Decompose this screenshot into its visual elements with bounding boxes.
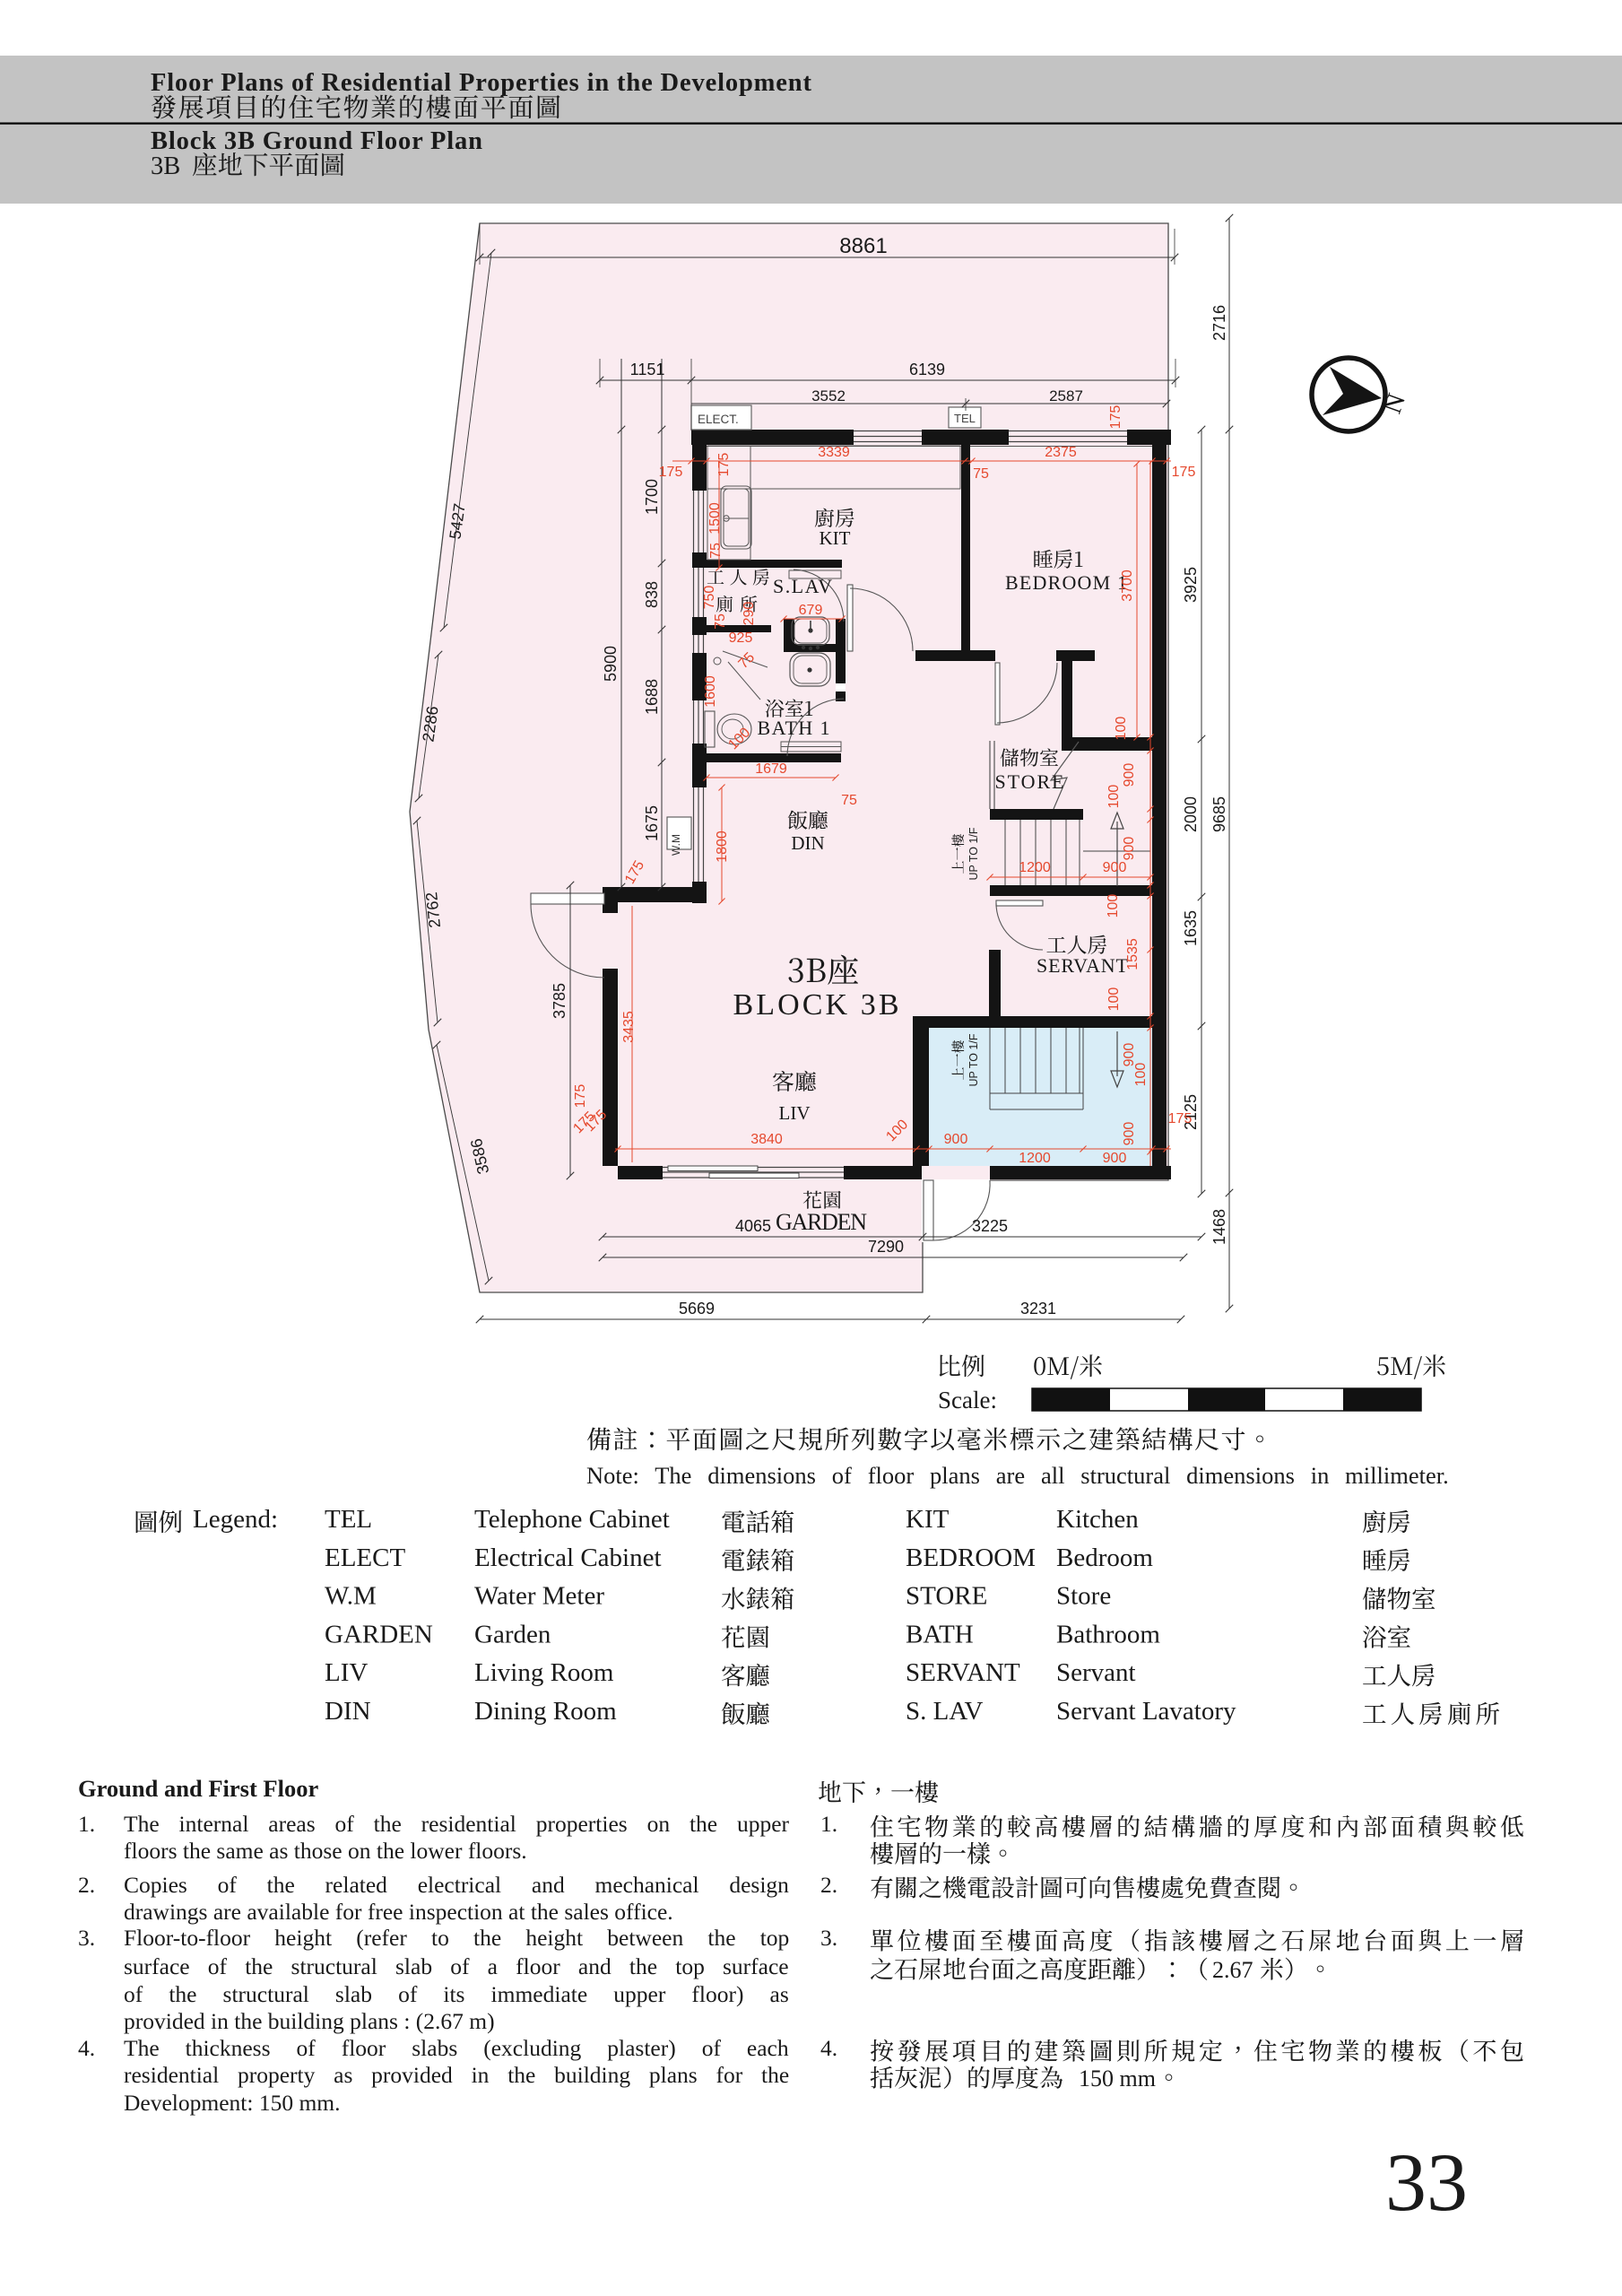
svg-text:UP TO 1/F: UP TO 1/F — [967, 1033, 980, 1086]
svg-text:The thickness of floor slabs (: The thickness of floor slabs (excluding … — [124, 2035, 789, 2061]
svg-text:Telephone Cabinet: Telephone Cabinet — [474, 1505, 670, 1534]
svg-text:3435: 3435 — [621, 1011, 637, 1043]
svg-text:Water Meter: Water Meter — [474, 1582, 604, 1611]
svg-text:3785: 3785 — [551, 983, 568, 1019]
svg-text:W.M: W.M — [325, 1582, 377, 1611]
svg-text:Servant Lavatory: Servant Lavatory — [1056, 1697, 1236, 1726]
svg-text:100: 100 — [1106, 894, 1121, 918]
svg-text:S.LAV: S.LAV — [773, 575, 832, 597]
svg-text:Scale:: Scale: — [938, 1387, 997, 1413]
svg-text:3552: 3552 — [811, 387, 846, 404]
svg-text:Garden: Garden — [474, 1620, 551, 1648]
svg-text:75: 75 — [841, 793, 857, 808]
svg-text:Kitchen: Kitchen — [1056, 1505, 1139, 1534]
svg-text:ELECT.: ELECT. — [698, 413, 739, 426]
svg-text:75: 75 — [713, 613, 728, 630]
svg-text:4065: 4065 — [735, 1217, 771, 1235]
svg-text:3.: 3. — [820, 1925, 837, 1951]
svg-text:Dining Room: Dining Room — [474, 1697, 617, 1726]
svg-text:1675: 1675 — [643, 805, 661, 841]
svg-text:2.: 2. — [820, 1872, 837, 1898]
svg-text:BATH: BATH — [906, 1620, 974, 1648]
svg-text:Electrical Cabinet: Electrical Cabinet — [474, 1544, 662, 1572]
svg-text:1679: 1679 — [755, 761, 787, 777]
svg-text:UP TO 1/F: UP TO 1/F — [967, 827, 980, 880]
svg-text:2.: 2. — [78, 1872, 95, 1898]
svg-text:1500: 1500 — [707, 502, 723, 535]
svg-text:900: 900 — [1122, 763, 1137, 787]
svg-text:GARDEN: GARDEN — [776, 1209, 867, 1235]
svg-text:100: 100 — [1114, 717, 1129, 741]
svg-text:Block 3B Ground Floor Plan: Block 3B Ground Floor Plan — [151, 127, 482, 155]
svg-text:900: 900 — [1122, 1122, 1137, 1146]
svg-text:3231: 3231 — [1020, 1300, 1056, 1318]
svg-text:floors the same as those on th: floors the same as those on the lower fl… — [124, 1838, 527, 1864]
svg-text:Legend:: Legend: — [193, 1505, 278, 1534]
svg-text:3700: 3700 — [1120, 570, 1135, 602]
svg-text:3225: 3225 — [972, 1217, 1008, 1235]
svg-text:Note: The dimensions of floor: Note: The dimensions of floor plans are … — [586, 1462, 1449, 1489]
svg-text:75: 75 — [973, 466, 989, 482]
svg-text:2000: 2000 — [1182, 796, 1200, 832]
svg-text:KIT: KIT — [820, 527, 851, 549]
svg-text:900: 900 — [944, 1132, 968, 1147]
svg-text:KIT: KIT — [906, 1505, 950, 1534]
svg-text:4.: 4. — [820, 2035, 837, 2061]
svg-text:1635: 1635 — [1182, 910, 1200, 946]
svg-text:900: 900 — [1103, 860, 1127, 875]
svg-text:2587: 2587 — [1049, 387, 1083, 404]
svg-text:Bedroom: Bedroom — [1056, 1544, 1153, 1572]
svg-text:175: 175 — [1168, 1111, 1193, 1126]
svg-text:surface of the structural slab: surface of the structural slab of a floo… — [124, 1953, 789, 1979]
svg-text:175: 175 — [1108, 405, 1123, 430]
svg-text:175: 175 — [659, 465, 683, 480]
svg-text:Bathroom: Bathroom — [1056, 1620, 1160, 1648]
svg-text:5669: 5669 — [679, 1300, 715, 1318]
svg-text:residential property as provid: residential property as provided in the … — [124, 2062, 789, 2088]
svg-text:S. LAV: S. LAV — [906, 1697, 984, 1726]
svg-text:3840: 3840 — [750, 1132, 783, 1147]
svg-text:1800: 1800 — [715, 831, 730, 863]
svg-text:1200: 1200 — [1019, 1151, 1051, 1166]
svg-text:6139: 6139 — [909, 361, 945, 378]
svg-text:1.: 1. — [820, 1811, 837, 1837]
svg-text:1700: 1700 — [643, 479, 661, 515]
svg-text:8861: 8861 — [839, 234, 887, 258]
svg-text:4.: 4. — [78, 2035, 95, 2061]
svg-text:3925: 3925 — [1182, 567, 1200, 603]
svg-text:W.M: W.M — [670, 834, 682, 856]
svg-text:BEDROOM: BEDROOM — [906, 1544, 1036, 1572]
svg-text:9685: 9685 — [1210, 796, 1228, 832]
svg-text:Copies of the related electric: Copies of the related electrical and mec… — [124, 1872, 789, 1898]
svg-text:Ground and First Floor: Ground and First Floor — [78, 1775, 318, 1802]
svg-text:33: 33 — [1385, 2136, 1468, 2228]
svg-text:2.67: 2.67 — [1212, 1957, 1253, 1983]
svg-text:TEL: TEL — [325, 1505, 372, 1534]
svg-text:BLOCK 3B: BLOCK 3B — [733, 988, 899, 1022]
svg-text:Servant: Servant — [1056, 1658, 1136, 1687]
svg-text:1468: 1468 — [1210, 1209, 1228, 1245]
svg-text:2716: 2716 — [1210, 305, 1228, 341]
svg-text:290: 290 — [742, 602, 757, 626]
svg-text:2375: 2375 — [1045, 445, 1077, 460]
svg-text:7290: 7290 — [868, 1238, 904, 1256]
svg-text:679: 679 — [799, 603, 823, 618]
svg-text:provided in the building plans: provided in the building plans : (2.67 m… — [124, 2008, 495, 2034]
svg-text:DIN: DIN — [791, 832, 824, 854]
svg-text:5900: 5900 — [602, 646, 620, 682]
svg-text:925: 925 — [729, 631, 753, 646]
svg-text:3.: 3. — [78, 1925, 95, 1951]
svg-text:SERVANT: SERVANT — [906, 1658, 1020, 1687]
svg-text:STORE: STORE — [906, 1582, 987, 1611]
svg-text:1600: 1600 — [703, 675, 718, 708]
svg-text:1688: 1688 — [643, 679, 661, 715]
svg-text:2762: 2762 — [422, 891, 444, 929]
svg-text:Development: 150 mm.: Development: 150 mm. — [124, 2090, 341, 2116]
svg-text:The internal areas of the resi: The internal areas of the residential pr… — [124, 1811, 790, 1837]
svg-text:900: 900 — [1122, 837, 1137, 861]
svg-text:175: 175 — [1172, 465, 1196, 480]
svg-text:Living Room: Living Room — [474, 1658, 614, 1687]
svg-text:150 mm: 150 mm — [1079, 2066, 1156, 2092]
svg-text:Floor-to-floor height (refer t: Floor-to-floor height (refer to the heig… — [124, 1925, 789, 1951]
svg-text:1200: 1200 — [1019, 860, 1051, 875]
svg-text:1151: 1151 — [630, 361, 665, 378]
svg-text:GARDEN: GARDEN — [325, 1620, 433, 1648]
svg-text:3B: 3B — [151, 152, 180, 180]
svg-text:100: 100 — [1106, 785, 1122, 809]
svg-text:1535: 1535 — [1125, 938, 1141, 970]
svg-text:75: 75 — [708, 543, 724, 559]
svg-text:LIV: LIV — [779, 1102, 811, 1124]
svg-text:100: 100 — [1106, 987, 1122, 1012]
svg-text:3339: 3339 — [818, 445, 850, 460]
svg-text:Store: Store — [1056, 1582, 1111, 1611]
svg-text:175: 175 — [573, 1084, 588, 1109]
svg-text:750: 750 — [702, 586, 717, 610]
svg-text:DIN: DIN — [325, 1697, 371, 1726]
svg-text:100: 100 — [1133, 1063, 1149, 1087]
svg-text:1.: 1. — [78, 1811, 95, 1837]
svg-text:BEDROOM 1: BEDROOM 1 — [1005, 571, 1127, 594]
svg-text:838: 838 — [643, 581, 661, 608]
svg-text:drawings are available for fre: drawings are available for free inspecti… — [124, 1899, 673, 1925]
svg-text:of the structural slab of its: of the structural slab of its immediate … — [124, 1981, 789, 2007]
svg-text:Floor Plans of Residential Pro: Floor Plans of Residential Properties in… — [151, 69, 812, 97]
svg-text:ELECT: ELECT — [325, 1544, 405, 1572]
svg-text:900: 900 — [1103, 1151, 1127, 1166]
svg-text:STORE: STORE — [995, 770, 1064, 793]
svg-text:SERVANT: SERVANT — [1037, 954, 1129, 977]
svg-text:LIV: LIV — [325, 1658, 368, 1687]
svg-text:TEL: TEL — [954, 412, 976, 425]
